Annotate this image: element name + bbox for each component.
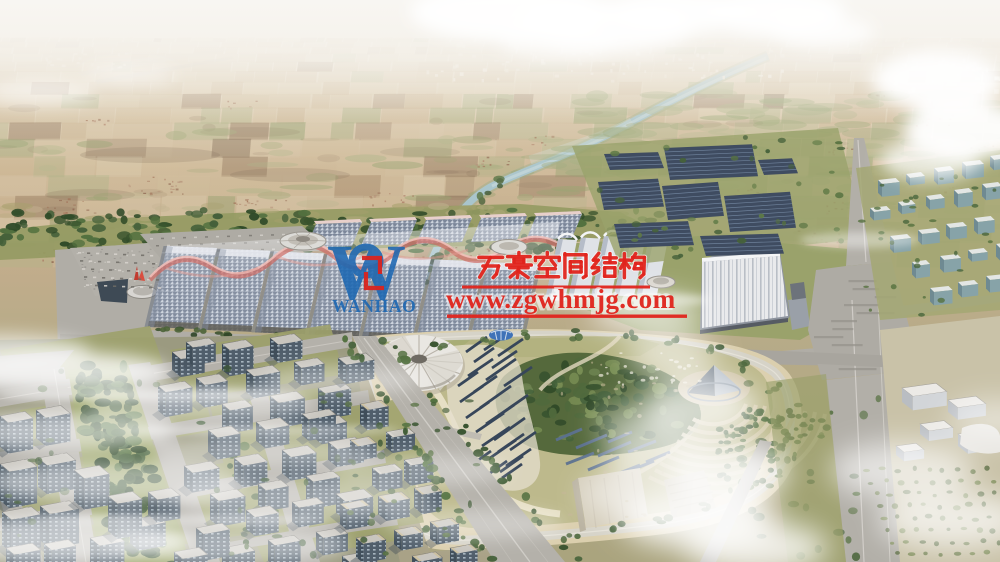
svg-text:WANHAO: WANHAO bbox=[332, 296, 416, 316]
svg-text:www.zgwhmjg.com: www.zgwhmjg.com bbox=[446, 284, 676, 314]
